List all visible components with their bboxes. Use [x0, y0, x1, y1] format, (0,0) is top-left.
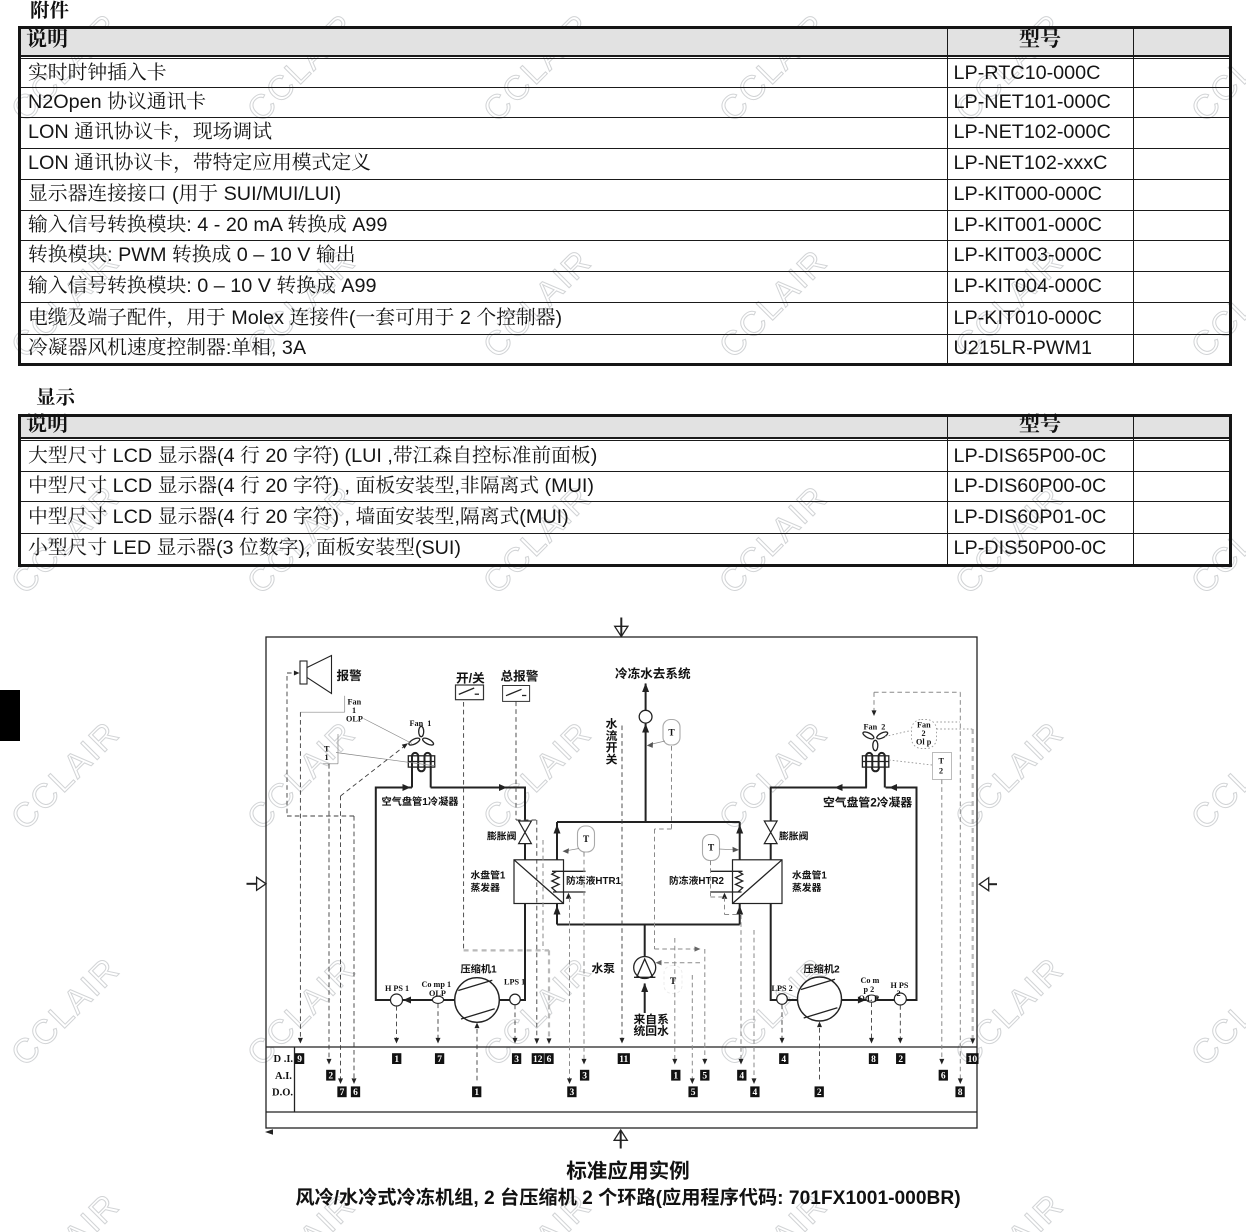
svg-text:CCLAIR: CCLAIR — [1184, 950, 1246, 1074]
svg-text:2: 2 — [328, 1072, 333, 1082]
svg-text:T: T — [583, 835, 590, 845]
svg-text:4: 4 — [781, 1055, 786, 1065]
svg-text:防冻液HTR2: 防冻液HTR2 — [669, 873, 725, 887]
svg-text:水泵: 水泵 — [592, 960, 616, 977]
svg-text:Ol p: Ol p — [916, 738, 932, 747]
svg-text:关: 关 — [606, 750, 618, 767]
svg-text:2: 2 — [898, 1055, 903, 1065]
svg-text:LPS 2: LPS 2 — [772, 984, 793, 993]
svg-text:7: 7 — [437, 1055, 442, 1065]
svg-text:膨胀阀: 膨胀阀 — [779, 828, 809, 842]
svg-text:T: T — [708, 844, 715, 854]
svg-text:4: 4 — [753, 1088, 758, 1098]
svg-text:8: 8 — [958, 1088, 963, 1098]
svg-text:LPS 1: LPS 1 — [504, 978, 525, 987]
svg-text:T: T — [939, 757, 945, 766]
svg-text:空气盘管2冷凝器: 空气盘管2冷凝器 — [823, 794, 912, 811]
svg-text:O L P: O L P — [859, 994, 879, 1003]
svg-text:T: T — [670, 977, 677, 987]
svg-text:Co mp 1: Co mp 1 — [422, 980, 452, 989]
svg-text:5: 5 — [691, 1088, 696, 1098]
svg-text:Fan 1: Fan 1 — [410, 719, 432, 728]
svg-text:空气盘管1冷凝器: 空气盘管1冷凝器 — [382, 793, 460, 808]
svg-text:防冻液HTR1: 防冻液HTR1 — [566, 873, 622, 887]
svg-text:2: 2 — [817, 1088, 822, 1098]
svg-text:3: 3 — [582, 1072, 587, 1082]
svg-text:OLP: OLP — [346, 715, 363, 724]
svg-text:1: 1 — [394, 1055, 399, 1065]
svg-text:1: 1 — [325, 753, 329, 762]
svg-text:CCLAIR: CCLAIR — [4, 950, 128, 1074]
svg-text:开/关: 开/关 — [456, 668, 485, 687]
svg-text:A.I.: A.I. — [275, 1071, 292, 1082]
svg-text:统回水: 统回水 — [634, 1022, 670, 1039]
svg-text:6: 6 — [547, 1055, 552, 1065]
svg-text:膨胀阀: 膨胀阀 — [487, 828, 517, 842]
svg-text:6: 6 — [353, 1088, 358, 1098]
svg-text:Co m: Co m — [861, 976, 880, 985]
svg-text:9: 9 — [297, 1055, 302, 1065]
svg-text:D.O.: D.O. — [272, 1088, 293, 1099]
svg-text:CCLAIR: CCLAIR — [1184, 714, 1246, 838]
svg-text:T: T — [668, 729, 675, 739]
svg-text:蒸发器: 蒸发器 — [792, 880, 822, 894]
svg-text:3: 3 — [514, 1055, 519, 1065]
svg-text:10: 10 — [968, 1055, 978, 1065]
svg-text:D .I.: D .I. — [274, 1054, 294, 1065]
svg-text:OLP: OLP — [429, 989, 446, 998]
svg-text:压缩机2: 压缩机2 — [804, 961, 841, 976]
svg-text:Fan 2: Fan 2 — [864, 723, 886, 732]
svg-text:报警: 报警 — [337, 665, 363, 684]
svg-text:5: 5 — [702, 1072, 707, 1082]
svg-text:12: 12 — [533, 1055, 543, 1065]
svg-text:6: 6 — [941, 1072, 946, 1082]
svg-text:11: 11 — [619, 1055, 628, 1065]
svg-text:3: 3 — [570, 1088, 575, 1098]
svg-text:2: 2 — [897, 989, 901, 998]
svg-text:压缩机1: 压缩机1 — [461, 961, 498, 976]
svg-text:H PS 1: H PS 1 — [385, 984, 409, 993]
svg-text:p 2: p 2 — [864, 985, 875, 994]
svg-text:8: 8 — [871, 1055, 876, 1065]
svg-text:1: 1 — [673, 1072, 678, 1082]
svg-text:7: 7 — [340, 1088, 345, 1098]
svg-text:总报警: 总报警 — [501, 666, 539, 685]
svg-text:4: 4 — [739, 1072, 744, 1082]
svg-text:1: 1 — [474, 1088, 479, 1098]
svg-text:蒸发器: 蒸发器 — [471, 880, 501, 894]
svg-text:2: 2 — [939, 767, 943, 776]
svg-text:冷冻水去系统: 冷冻水去系统 — [615, 663, 691, 682]
svg-text:CCLAIR: CCLAIR — [4, 714, 128, 838]
